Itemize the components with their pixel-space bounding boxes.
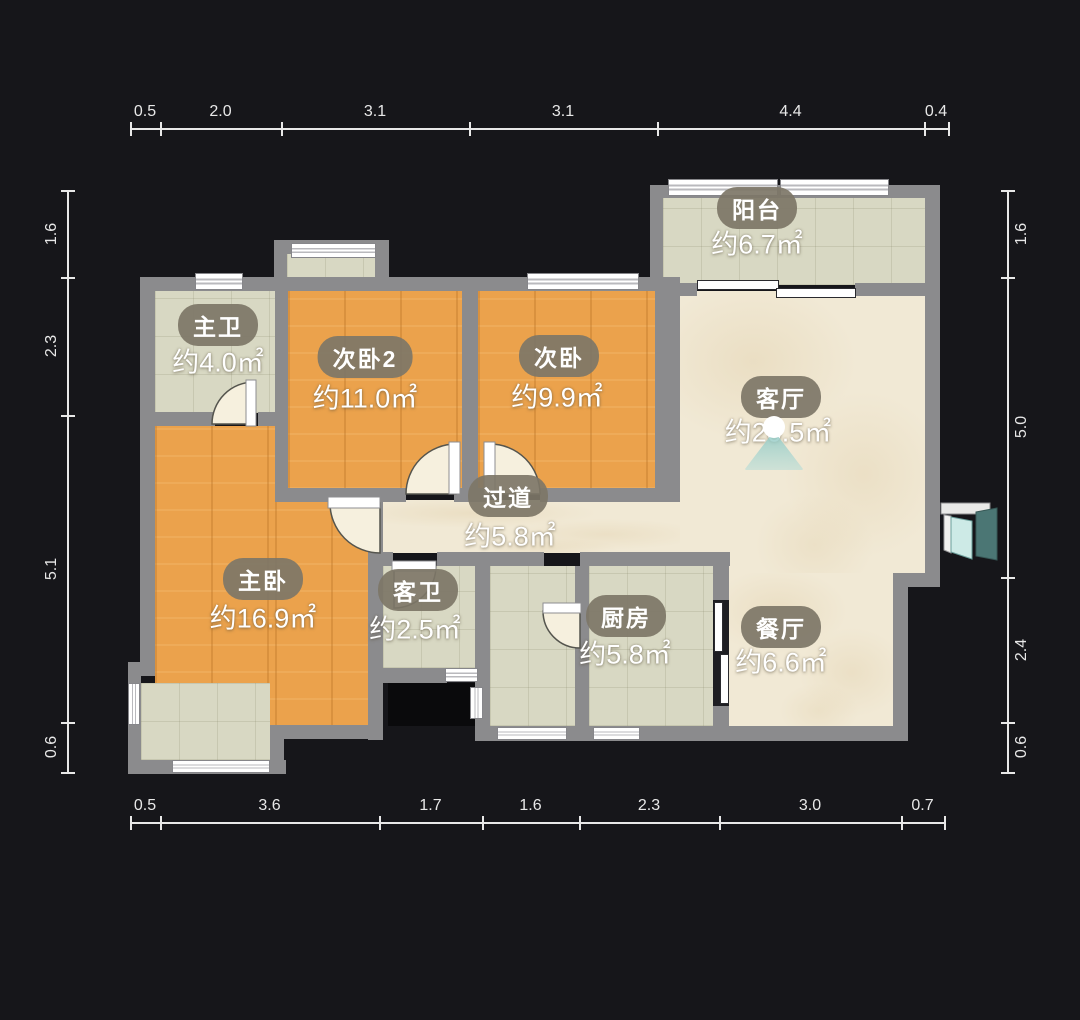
room-area-master-bath: 约4.0㎡ bbox=[172, 341, 264, 380]
floorplan-canvas: 阳台 约6.7㎡ 主卫 约4.0㎡ 次卧2 约11.0㎡ 次卧 约9.9㎡ 客厅… bbox=[0, 0, 1080, 1020]
bedroom2-door bbox=[406, 442, 460, 494]
room-label-bedroom[interactable]: 次卧 bbox=[519, 335, 599, 377]
master-bedroom-door bbox=[328, 497, 380, 553]
room-label-dining-room[interactable]: 餐厅 bbox=[741, 606, 821, 648]
room-area-bedroom: 约9.9㎡ bbox=[511, 376, 603, 415]
utility-room-door bbox=[543, 603, 581, 648]
room-label-balcony[interactable]: 阳台 bbox=[717, 187, 797, 229]
room-area-hallway: 约5.8㎡ bbox=[464, 515, 556, 554]
room-label-guest-bath[interactable]: 客卫 bbox=[378, 569, 458, 611]
room-label-master-bath[interactable]: 主卫 bbox=[178, 304, 258, 346]
room-label-bedroom2[interactable]: 次卧2 bbox=[318, 336, 413, 378]
room-area-bedroom2: 约11.0㎡ bbox=[313, 377, 418, 416]
room-label-master-bedroom[interactable]: 主卧 bbox=[223, 558, 303, 600]
room-label-hallway[interactable]: 过道 bbox=[468, 475, 548, 517]
room-area-master-bedroom: 约16.9㎡ bbox=[210, 597, 317, 636]
room-area-kitchen: 约5.8㎡ bbox=[579, 633, 671, 672]
room-area-guest-bath: 约2.5㎡ bbox=[369, 608, 461, 647]
room-label-kitchen[interactable]: 厨房 bbox=[586, 595, 666, 637]
master-bath-door bbox=[212, 380, 256, 426]
entry-door bbox=[941, 503, 997, 560]
panorama-camera-icon[interactable] bbox=[734, 410, 814, 470]
